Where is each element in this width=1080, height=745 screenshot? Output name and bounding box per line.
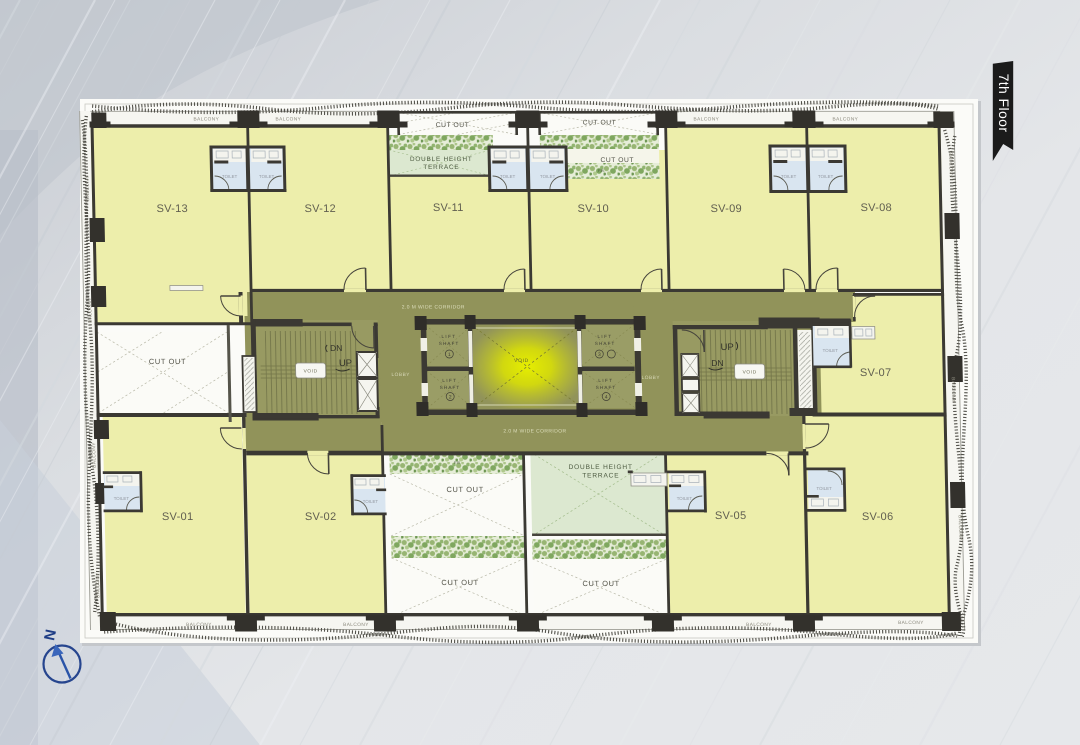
- svg-text:TOILET: TOILET: [677, 496, 693, 501]
- svg-text:SV-12: SV-12: [304, 203, 336, 215]
- svg-text:F.B.: F.B.: [598, 168, 605, 173]
- svg-text:2.0 M WIDE CORRIDOR: 2.0 M WIDE CORRIDOR: [402, 305, 465, 311]
- svg-text:BALCONY: BALCONY: [193, 117, 219, 123]
- svg-text:LIFT: LIFT: [597, 334, 612, 339]
- svg-text:LOBBY: LOBBY: [641, 375, 660, 381]
- svg-text:BALCONY: BALCONY: [91, 442, 98, 468]
- svg-text:TERRACE: TERRACE: [582, 473, 619, 480]
- svg-text:CUT OUT: CUT OUT: [600, 157, 634, 164]
- svg-text:TOILET: TOILET: [781, 174, 797, 179]
- svg-text:VOID: VOID: [304, 369, 318, 375]
- svg-text:SV-11: SV-11: [433, 202, 464, 214]
- svg-text:CUT OUT: CUT OUT: [582, 579, 620, 588]
- svg-text:F.B.: F.B.: [454, 460, 461, 465]
- svg-text:SV-07: SV-07: [860, 367, 892, 379]
- svg-text:VOID: VOID: [514, 358, 529, 364]
- svg-text:BALCONY: BALCONY: [85, 175, 92, 201]
- svg-text:BALCONY: BALCONY: [95, 572, 102, 598]
- svg-text:LIFT: LIFT: [442, 378, 457, 383]
- svg-text:SV-05: SV-05: [715, 510, 747, 522]
- svg-text:BALCONY: BALCONY: [898, 620, 924, 626]
- svg-text:BALCONY: BALCONY: [693, 117, 719, 123]
- svg-text:SV-06: SV-06: [862, 511, 894, 523]
- svg-text:4: 4: [605, 395, 608, 401]
- svg-text:BALCONY: BALCONY: [87, 297, 94, 323]
- svg-text:BALCONY: BALCONY: [186, 622, 212, 628]
- svg-text:BALCONY: BALCONY: [343, 622, 369, 628]
- svg-text:SV-09: SV-09: [710, 203, 742, 215]
- svg-text:CUT OUT: CUT OUT: [436, 122, 470, 129]
- svg-text:3: 3: [598, 352, 601, 358]
- svg-text:BALCONY: BALCONY: [746, 622, 772, 628]
- svg-text:SHAFT: SHAFT: [596, 385, 617, 390]
- svg-text:SHAFT: SHAFT: [440, 385, 461, 390]
- svg-text:TOILET: TOILET: [114, 496, 130, 501]
- svg-text:SHAFT: SHAFT: [439, 341, 460, 346]
- svg-text:F.B.: F.B.: [596, 546, 603, 551]
- svg-text:TOILET: TOILET: [816, 486, 832, 491]
- svg-text:TOILET: TOILET: [540, 174, 556, 179]
- svg-text:SHAFT: SHAFT: [595, 341, 616, 346]
- svg-text:SV-08: SV-08: [860, 202, 892, 214]
- svg-text:TERRACE: TERRACE: [423, 164, 459, 171]
- svg-text:SV-10: SV-10: [577, 203, 609, 215]
- svg-text:BALCONY: BALCONY: [950, 377, 957, 403]
- svg-text:BALCONY: BALCONY: [832, 117, 858, 123]
- svg-text:DOUBLE HEIGHT: DOUBLE HEIGHT: [568, 464, 632, 471]
- svg-text:DN: DN: [330, 343, 342, 353]
- svg-text:LIFT: LIFT: [598, 378, 613, 383]
- svg-text:TOILET: TOILET: [818, 174, 834, 179]
- svg-text:DOUBLE HEIGHT: DOUBLE HEIGHT: [410, 156, 473, 163]
- svg-text:DN: DN: [711, 358, 723, 368]
- svg-text:2: 2: [449, 395, 452, 401]
- svg-text:LIFT: LIFT: [441, 334, 456, 339]
- svg-text:1: 1: [448, 352, 451, 358]
- svg-text:CUT OUT: CUT OUT: [149, 357, 187, 366]
- svg-text:UP: UP: [720, 342, 733, 353]
- svg-text:TOILET: TOILET: [500, 174, 516, 179]
- svg-text:BALCONY: BALCONY: [275, 117, 301, 123]
- svg-text:2.0 M WIDE CORRIDOR: 2.0 M WIDE CORRIDOR: [503, 429, 566, 435]
- svg-text:CUT OUT: CUT OUT: [441, 578, 479, 587]
- svg-text:VOID: VOID: [743, 370, 757, 376]
- svg-text:BALCONY: BALCONY: [947, 152, 954, 178]
- svg-text:LOBBY: LOBBY: [391, 372, 410, 378]
- svg-text:UP: UP: [339, 358, 352, 369]
- svg-text:SV-13: SV-13: [156, 203, 188, 215]
- svg-text:CUT OUT: CUT OUT: [446, 485, 484, 494]
- svg-text:TOILET: TOILET: [363, 499, 379, 504]
- svg-text:7th Floor: 7th Floor: [996, 74, 1012, 133]
- svg-text:BALCONY: BALCONY: [957, 515, 964, 541]
- svg-text:TOILET: TOILET: [823, 348, 839, 353]
- svg-text:SV-01: SV-01: [162, 511, 194, 523]
- svg-text:TOILET: TOILET: [259, 174, 275, 179]
- svg-text:TOILET: TOILET: [222, 174, 238, 179]
- svg-text:CUT OUT: CUT OUT: [583, 120, 617, 127]
- svg-text:SV-02: SV-02: [305, 511, 337, 523]
